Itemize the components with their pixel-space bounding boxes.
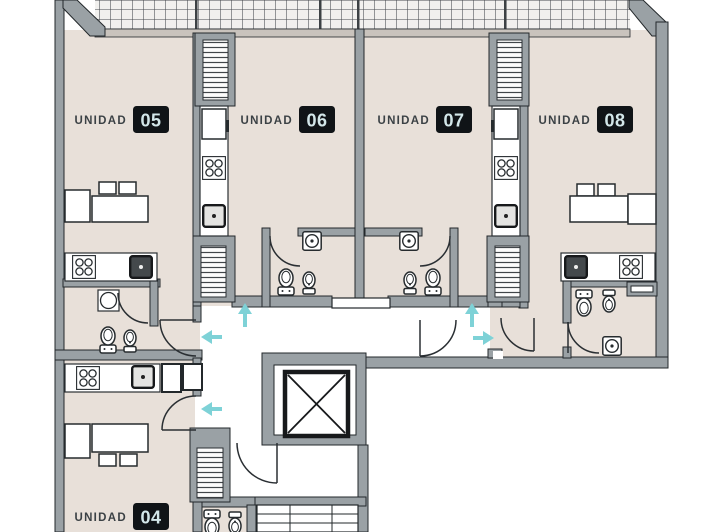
refrigerator-handle	[491, 120, 494, 132]
stairs-icon	[257, 505, 358, 532]
toilet-icon	[425, 269, 441, 295]
unit-number-text: 06	[306, 111, 327, 131]
kitchen-unit08	[561, 253, 655, 281]
terrace-divider	[504, 0, 507, 29]
unit08-bath-wall-stub	[563, 347, 571, 358]
chair	[99, 454, 116, 466]
dining-table	[92, 196, 148, 222]
refrigerator-icon	[494, 109, 518, 139]
outer-wall-left	[55, 0, 64, 532]
sink-icon	[565, 256, 587, 278]
unit-name-text: UNIDAD	[240, 115, 293, 127]
unit-number-text: 08	[604, 111, 625, 131]
ventilation-shaft	[495, 246, 520, 297]
terrace-divider	[357, 0, 360, 29]
kitchen-unit06	[200, 106, 229, 236]
outer-wall-right	[656, 22, 668, 368]
bidet-icon	[229, 512, 241, 532]
refrigerator-handle	[226, 120, 229, 132]
terrace-divider	[319, 0, 322, 29]
terrace-divider	[195, 0, 198, 29]
doorsill	[493, 351, 503, 359]
sink-icon	[203, 205, 225, 227]
stove-icon	[620, 256, 643, 279]
bath04-wall-right	[247, 505, 256, 532]
chair	[120, 454, 137, 466]
chair	[119, 182, 136, 194]
closet	[183, 364, 202, 390]
unit08-bath-wall	[563, 279, 571, 323]
toilet-icon	[100, 327, 116, 353]
counter-block	[65, 190, 90, 222]
elevator	[262, 353, 366, 445]
kitchen-unit05	[65, 253, 157, 281]
bidet-icon	[603, 290, 615, 312]
washing-machine-icon	[603, 337, 621, 355]
sink-icon	[130, 256, 152, 278]
stove-icon	[203, 157, 226, 180]
main-stairs	[257, 505, 358, 532]
chair	[598, 184, 615, 196]
shower-drain	[101, 293, 117, 309]
washing-machine-icon	[303, 232, 321, 250]
stove-icon	[73, 256, 96, 279]
dining-table	[92, 424, 148, 452]
chair	[99, 182, 116, 194]
stove-icon	[495, 157, 518, 180]
unit-name-text: UNIDAD	[74, 512, 127, 524]
dining-table	[570, 196, 628, 222]
terrace-hatch	[95, 0, 630, 29]
stove-icon	[77, 367, 100, 390]
bidet-icon	[124, 330, 136, 352]
unit-name-text: UNIDAD	[74, 115, 127, 127]
sink-icon	[132, 366, 154, 388]
outer-wall-bottom-right	[363, 357, 668, 368]
toilet-icon	[204, 510, 220, 532]
corridor-wall-top-left	[232, 296, 332, 307]
washing-machine-icon	[400, 232, 418, 250]
lobby-wall-east	[358, 445, 368, 532]
entry-niche	[332, 298, 390, 308]
unit05-bath-wall	[150, 279, 158, 326]
floor-plan: UNIDAD 05 UNIDAD 06 UNIDAD 07 UNIDAD 08 …	[0, 0, 720, 532]
sink-icon	[495, 205, 517, 227]
bath07-wall	[450, 228, 458, 307]
vanity-niche	[631, 286, 653, 292]
floor-plan-canvas: UNIDAD 05 UNIDAD 06 UNIDAD 07 UNIDAD 08 …	[0, 0, 720, 532]
wall-unit06-07	[355, 29, 364, 308]
bidet-icon	[303, 272, 315, 294]
unit-number-text: 07	[443, 111, 464, 131]
counter-block	[65, 424, 90, 458]
bath06-wall	[262, 228, 270, 307]
bidet-icon	[404, 272, 416, 294]
kitchen-unit04	[65, 364, 202, 392]
counter-block	[628, 194, 656, 224]
ventilation-shaft	[201, 246, 226, 297]
unit-name-text: UNIDAD	[377, 115, 430, 127]
ventilation-shaft	[203, 40, 228, 100]
toilet-icon	[576, 290, 592, 316]
ventilation-shaft	[497, 40, 522, 100]
stairs-icon	[197, 448, 223, 498]
closet	[162, 364, 181, 392]
unit-name-text: UNIDAD	[538, 115, 591, 127]
toilet-icon	[278, 269, 294, 295]
chair	[577, 184, 594, 196]
kitchen-unit07	[491, 106, 520, 236]
unit-number-text: 04	[140, 508, 161, 528]
refrigerator-icon	[202, 109, 226, 139]
unit-number-text: 05	[140, 111, 161, 131]
